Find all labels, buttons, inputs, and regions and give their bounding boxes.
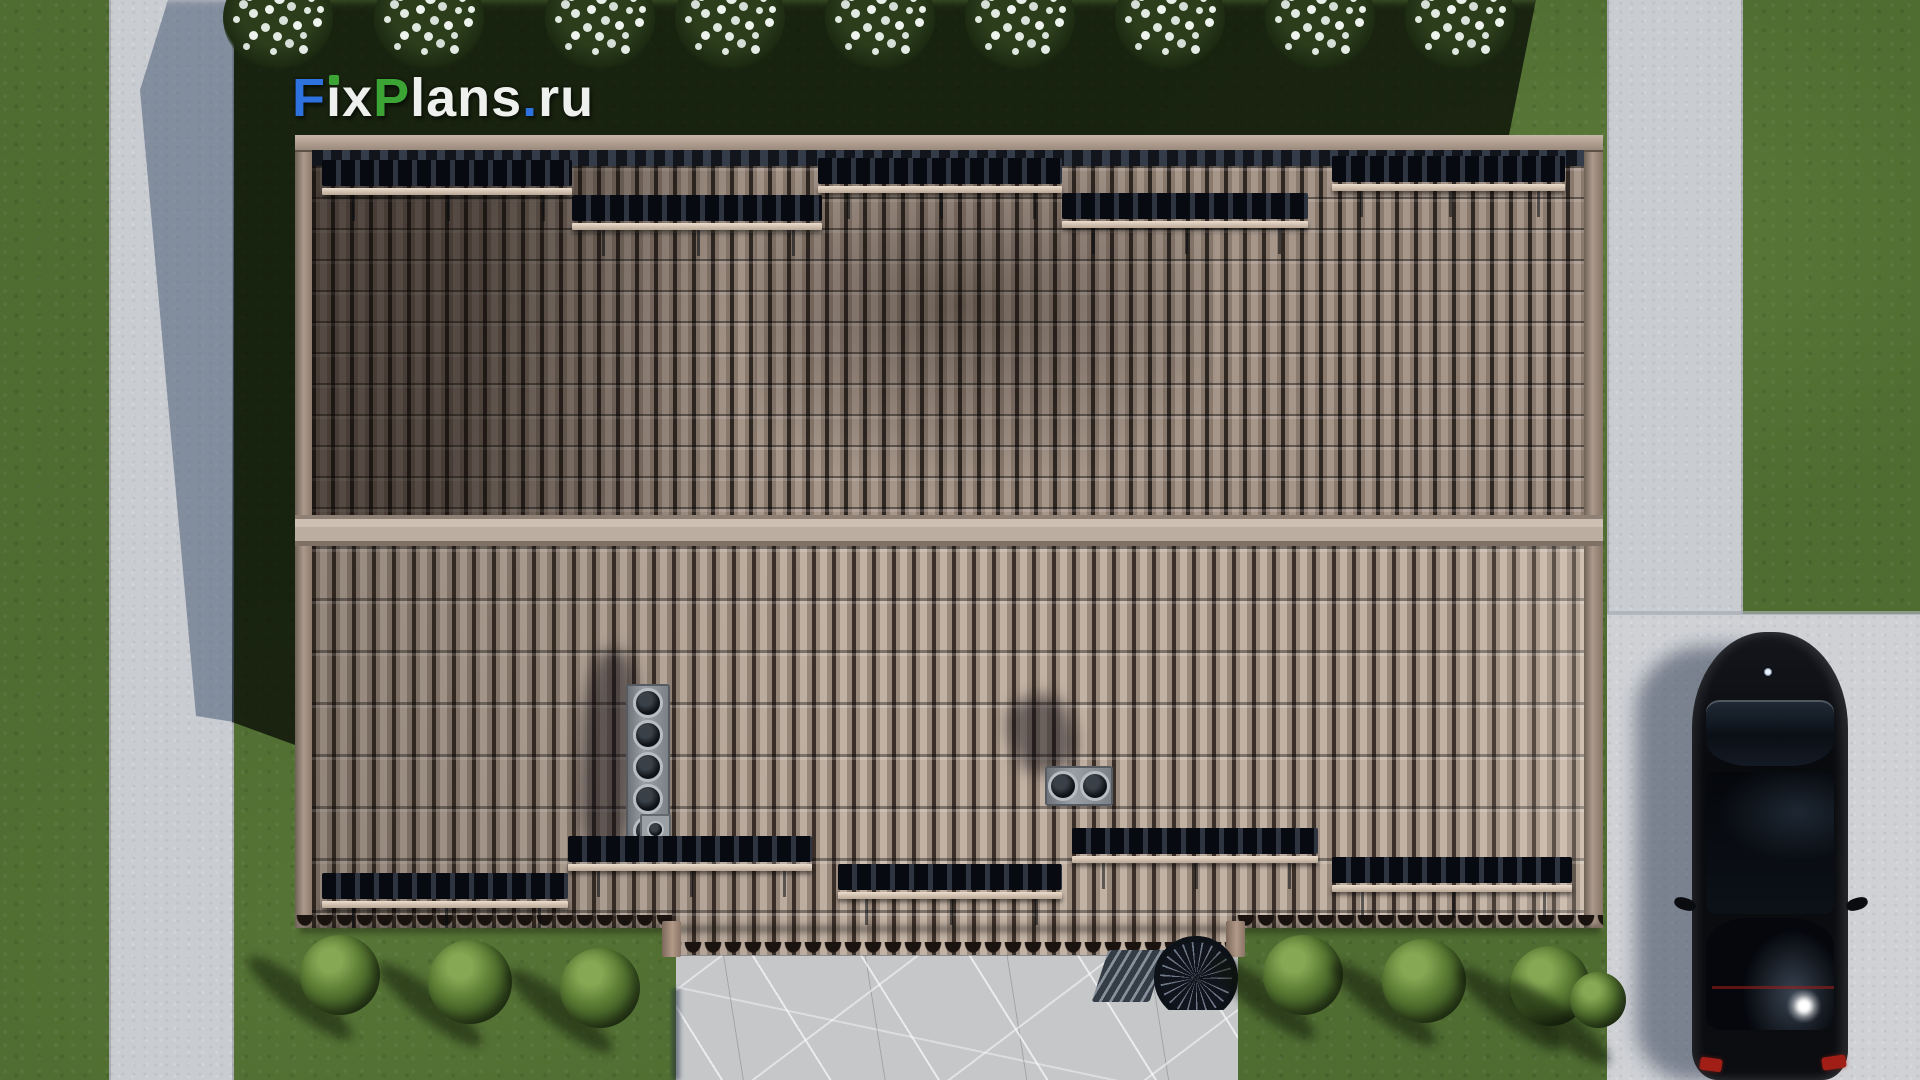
snow-guard-comb (322, 160, 572, 186)
vent-pipe (633, 784, 663, 814)
chimney-vent-pair (1045, 766, 1113, 806)
snow-guard-bracket (697, 230, 700, 256)
eave-drip-shadow (300, 925, 1600, 933)
snow-guard-bracket (792, 230, 795, 256)
vent-pipe (633, 720, 663, 750)
snow-guard-comb (818, 158, 1062, 184)
car-roof-glass (1706, 772, 1834, 914)
snow-guard-rail (568, 864, 812, 871)
snow-guard-bracket (1195, 863, 1198, 889)
snow-guard-bracket (1035, 899, 1038, 925)
snow-guard-bracket (1537, 191, 1540, 217)
snow-guard-bracket (865, 899, 868, 925)
site-render: FıxPlans.ru (0, 0, 1920, 1080)
snow-guard-comb (838, 864, 1062, 890)
garden-bush (1263, 935, 1343, 1015)
garden-bush (300, 935, 380, 1015)
snow-guard-comb (1062, 193, 1308, 219)
snow-guard-bracket (352, 195, 355, 221)
snow-guard-rail (838, 892, 1062, 899)
snow-guard-comb (568, 836, 812, 862)
patio-side-shadow (672, 988, 680, 1080)
car-windshield (1706, 700, 1834, 766)
snow-guard-rail (572, 223, 822, 230)
snow-guard-bracket (940, 193, 943, 219)
watermark-letter: ı (326, 70, 342, 126)
snow-guard-bracket (950, 899, 953, 925)
roof-slope-upper (312, 166, 1584, 515)
snow-guard-bracket (597, 871, 600, 897)
snow-guard-rail (1072, 856, 1318, 863)
car-taillight-reflection (1712, 986, 1834, 989)
vent-pipe (1080, 771, 1110, 801)
watermark-letter: x (342, 70, 373, 126)
garden-bush (560, 948, 640, 1028)
snow-guard-bracket (1102, 863, 1105, 889)
garden-bush (1382, 939, 1466, 1023)
snow-guard-bracket (783, 871, 786, 897)
vent-pipe (1048, 771, 1078, 801)
snow-guard-bracket (542, 195, 545, 221)
snow-guard-comb (1332, 156, 1565, 182)
vent-pipe (633, 752, 663, 782)
roof-ridge (295, 515, 1603, 546)
garden-bush (428, 940, 512, 1024)
watermark-letter: . (522, 70, 538, 126)
snow-guard-bracket (1361, 892, 1364, 918)
snow-guard-bracket (1360, 191, 1363, 217)
snow-guard-comb (572, 195, 822, 221)
snow-guard-rail (1332, 184, 1565, 191)
snow-guard-bracket (1278, 228, 1281, 254)
snow-guard-rail (818, 186, 1062, 193)
watermark-letter: P (373, 70, 410, 126)
snow-guard-comb (1072, 828, 1318, 854)
snow-guard-rail (1332, 885, 1572, 892)
watermark-letter-dot (329, 75, 339, 85)
snow-guard-bracket (1449, 191, 1452, 217)
watermark-letter: ru (538, 70, 594, 126)
car-sun-glare (1786, 990, 1822, 1022)
snow-guard-comb (322, 873, 568, 899)
snow-guard-rail (322, 188, 572, 195)
snow-guard-bracket (690, 871, 693, 897)
snow-guard-bracket (602, 230, 605, 256)
watermark-letter: lans (410, 70, 522, 126)
snow-guard-bracket (1288, 863, 1291, 889)
vent-pipe (633, 688, 663, 718)
watermark-letter: F (292, 70, 326, 126)
snow-guard-bracket (1452, 892, 1455, 918)
snow-guard-rail (1062, 221, 1308, 228)
snow-guard-rail (322, 901, 568, 908)
garden-bush (1570, 972, 1626, 1028)
patio-pillar-left (662, 921, 681, 957)
tiled-roof (295, 135, 1603, 955)
snow-guard-bracket (847, 193, 850, 219)
snow-guard-bracket (1092, 228, 1095, 254)
snow-guard-bracket (1185, 228, 1188, 254)
snow-guard-bracket (1033, 193, 1036, 219)
snow-guard-bracket (1543, 892, 1546, 918)
walkway-right (1607, 0, 1743, 614)
driveway-seam (1607, 611, 1920, 615)
fixplans-watermark: FıxPlans.ru (292, 70, 594, 126)
car-emblem (1764, 668, 1772, 676)
snow-guard-comb (1332, 857, 1572, 883)
snow-guard-bracket (447, 195, 450, 221)
